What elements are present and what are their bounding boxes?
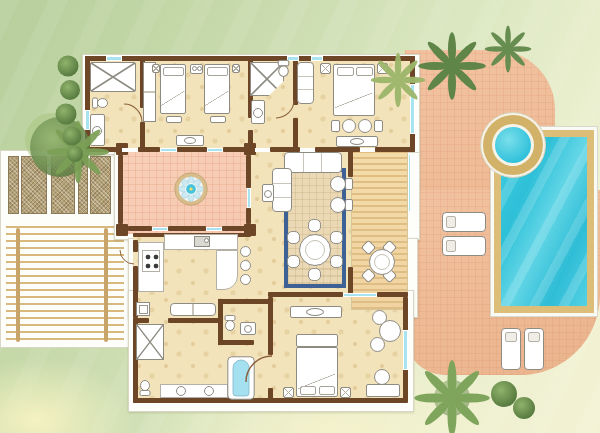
luggage-tray <box>306 308 324 316</box>
courtyard-threshold <box>160 148 177 152</box>
wall-segment <box>293 118 298 149</box>
bush <box>58 56 79 77</box>
walk-in-closet <box>90 62 136 92</box>
toilet <box>92 96 109 110</box>
pillow <box>207 67 228 76</box>
door-arc <box>276 100 294 118</box>
deck-table-top <box>374 254 390 270</box>
desk-chair <box>374 369 390 385</box>
bush <box>513 397 535 419</box>
wall-segment <box>168 226 206 231</box>
lamp <box>197 66 202 71</box>
toilet-icon <box>277 60 290 77</box>
sofa-chaise-section <box>272 168 292 212</box>
double-bed <box>333 64 375 116</box>
desk <box>366 384 400 397</box>
toilet <box>224 315 236 331</box>
courtyard-threshold <box>247 188 251 208</box>
villa-floor-plan <box>0 0 600 433</box>
chaise-lounge <box>297 62 314 104</box>
bed-bench <box>210 116 226 123</box>
armchair-back <box>345 199 353 211</box>
lounger-backrest <box>446 216 456 228</box>
basin <box>176 386 186 396</box>
window <box>410 84 415 134</box>
hall-bench <box>170 303 216 316</box>
window <box>311 56 323 61</box>
bush <box>491 381 517 407</box>
dining-table-top <box>305 240 325 260</box>
wall-segment <box>133 398 408 403</box>
shower <box>136 324 164 360</box>
pergola-rail-left <box>16 228 20 342</box>
lounger-backrest <box>446 240 456 252</box>
pouf-seat <box>358 119 372 133</box>
nightstand <box>283 387 294 398</box>
double-vanity <box>160 384 228 398</box>
door-threshold <box>122 148 138 152</box>
wall-segment <box>375 147 415 152</box>
wall-segment <box>168 318 220 323</box>
wall-segment <box>128 226 152 231</box>
lounger-backrest <box>528 332 540 342</box>
pillow <box>163 67 184 76</box>
door-arc <box>124 104 142 122</box>
wall-segment <box>268 292 343 297</box>
tree-canopy <box>434 380 470 416</box>
faucet <box>204 238 209 243</box>
sun-lounger <box>501 328 521 370</box>
pillow <box>300 386 316 395</box>
patio-door-glazing <box>343 293 377 297</box>
single-bed <box>204 64 230 114</box>
wall-segment <box>268 297 273 355</box>
wall-segment <box>348 150 353 177</box>
basin <box>204 386 214 396</box>
wall-segment <box>246 155 251 188</box>
wall-segment <box>218 299 223 345</box>
door-arc <box>246 356 272 382</box>
toilet-icon <box>224 315 236 331</box>
table-lamp <box>264 190 272 198</box>
nightstand <box>232 64 240 73</box>
sun-deck-floor <box>351 150 408 310</box>
wall-segment <box>218 340 254 345</box>
sofa <box>284 152 342 173</box>
bedroom-chair <box>370 337 385 352</box>
nightstand <box>320 63 331 74</box>
window <box>403 330 408 370</box>
pouf-table <box>331 120 340 132</box>
toilet <box>277 60 290 77</box>
nightstand <box>152 64 160 73</box>
basin <box>253 108 263 118</box>
single-bed <box>160 64 186 114</box>
nightstand <box>377 63 388 74</box>
wall-segment <box>348 267 353 295</box>
breakfast-bar <box>216 250 238 290</box>
shower-cross-icon <box>137 325 163 359</box>
console-bowl <box>184 137 196 144</box>
wall-segment <box>218 299 270 304</box>
wall-segment <box>140 122 145 149</box>
bush <box>56 104 77 125</box>
nightstand <box>340 387 351 398</box>
pillow <box>356 67 373 76</box>
sun-lounger <box>524 328 544 370</box>
courtyard-threshold <box>206 227 222 231</box>
toilet-icon <box>92 97 108 109</box>
jacuzzi-water <box>495 127 531 163</box>
toilet-icon <box>139 380 151 396</box>
wall-segment <box>222 226 246 231</box>
stove <box>142 250 160 272</box>
closet-cross-icon <box>91 63 135 91</box>
courtyard-column <box>116 224 128 236</box>
courtyard-threshold <box>152 227 168 231</box>
basin <box>244 325 252 333</box>
sun-lounger <box>442 212 486 232</box>
sun-lounger <box>442 236 486 256</box>
deck-rail-glazing <box>408 154 411 212</box>
hall-mirror-console <box>136 302 150 316</box>
basin <box>92 126 102 136</box>
luggage-tray <box>350 138 364 145</box>
pillow <box>337 67 354 76</box>
door-threshold <box>255 148 270 152</box>
bed-bench <box>166 116 182 123</box>
lounger-backrest <box>505 332 517 342</box>
pergola-rail-right <box>104 228 108 342</box>
wall-segment <box>118 155 123 224</box>
pillow <box>319 386 335 395</box>
double-bed <box>296 347 338 397</box>
bed-foot-bench <box>296 334 338 347</box>
pouf-table <box>374 120 383 132</box>
wall-segment <box>177 147 207 152</box>
door-threshold <box>360 148 375 152</box>
bush <box>63 127 82 146</box>
wall-segment <box>246 208 251 224</box>
pouf-seat <box>342 119 356 133</box>
toilet <box>139 380 151 396</box>
courtyard-threshold <box>207 148 223 152</box>
armchair-back <box>345 178 353 190</box>
bush <box>60 80 80 100</box>
window <box>106 56 122 61</box>
door-arc <box>120 250 134 264</box>
armchair <box>330 176 346 192</box>
fountain <box>174 172 208 206</box>
armchair <box>330 197 346 213</box>
